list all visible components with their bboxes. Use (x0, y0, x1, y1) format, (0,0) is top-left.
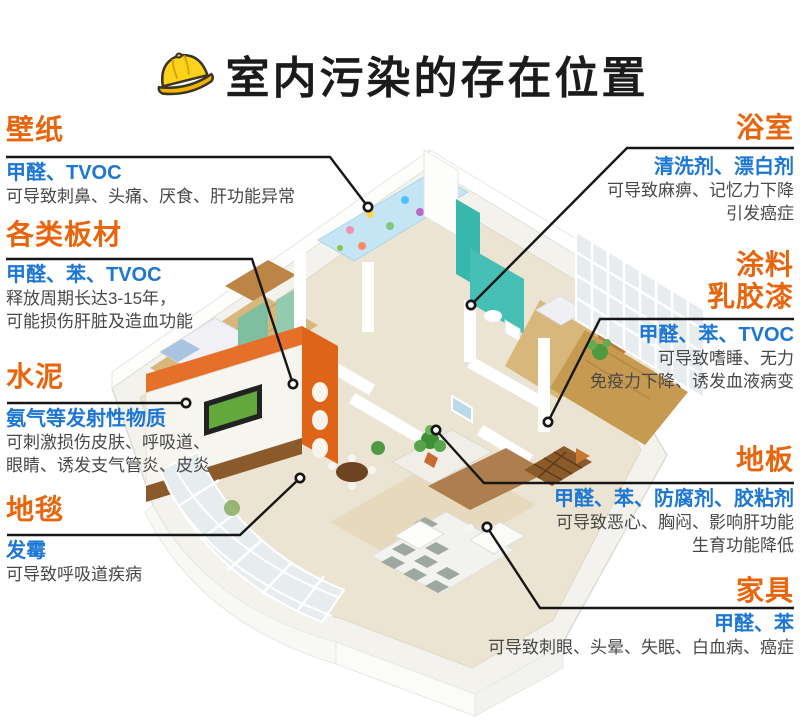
callout-title: 家具 (736, 575, 794, 607)
callout-title-line: 乳胶漆 (707, 281, 794, 313)
leader-dot-bathroom (467, 301, 475, 309)
callout-title: 浴室 (736, 112, 794, 144)
effects-line: 可导致恶心、胸闷、影响肝功能 (554, 511, 794, 534)
leader-dot-cement (182, 399, 190, 407)
hard-hat-icon (152, 45, 214, 104)
callout-wallpaper-body: 甲醛、TVOC 可导致刺鼻、头痛、厌食、肝功能异常 (6, 161, 295, 208)
effects-line: 免疫力下降、诱发血液病变 (590, 370, 794, 393)
effects-line: 可导致呼吸道疾病 (6, 563, 142, 586)
callout-title: 水泥 (6, 361, 64, 393)
callout-carpet: 地毯 (6, 494, 64, 526)
effects-line: 可导致刺眼、头晕、失眠、白血病、癌症 (488, 636, 794, 659)
callout-paint: 涂料 乳胶漆 (707, 249, 794, 313)
effects-line: 可刺激损伤皮肤、呼吸道、 (6, 431, 210, 454)
effects-line: 可导致嗜睡、无力 (590, 347, 794, 370)
callout-title: 壁纸 (6, 114, 64, 146)
callout-furniture-body: 甲醛、苯 可导致刺眼、头晕、失眠、白血病、癌症 (488, 612, 794, 659)
pollutants: 氨气等发射性物质 (6, 407, 210, 431)
callout-furniture: 家具 (736, 575, 794, 607)
callout-bathroom-body: 清洗剂、漂白剂 可导致麻痹、记忆力下降 引发癌症 (607, 155, 794, 225)
effects-line: 生育功能降低 (554, 534, 794, 557)
infographic-canvas: 室内污染的存在位置 壁纸 甲醛、TVOC 可导致刺鼻、头痛、厌食、肝功能异常 各… (0, 0, 800, 720)
callout-floor: 地板 (736, 444, 794, 476)
pollutants: 发霉 (6, 539, 142, 563)
leader-dot-paint (544, 418, 552, 426)
callout-floor-body: 甲醛、苯、防腐剂、胶粘剂 可导致恶心、胸闷、影响肝功能 生育功能降低 (554, 487, 794, 557)
callout-title-line: 涂料 (707, 249, 794, 281)
effects-line: 引发癌症 (607, 202, 794, 225)
callout-paint-body: 甲醛、苯、TVOC 可导致嗜睡、无力 免疫力下降、诱发血液病变 (590, 323, 794, 393)
pollutants: 清洗剂、漂白剂 (607, 155, 794, 179)
leader-dot-carpet (296, 474, 304, 482)
pollutants: 甲醛、苯、TVOC (6, 263, 193, 287)
leader-dot-wallpaper (364, 203, 372, 211)
pollutants: 甲醛、苯、防腐剂、胶粘剂 (554, 487, 794, 511)
effects-line: 眼睛、诱发支气管炎、皮炎 (6, 454, 210, 477)
effects-line: 可导致麻痹、记忆力下降 (607, 179, 794, 202)
effects-line: 释放周期长达3-15年， (6, 287, 193, 310)
leader-dot-furniture (483, 523, 491, 531)
callout-boards-body: 甲醛、苯、TVOC 释放周期长达3-15年， 可能损伤肝脏及造血功能 (6, 263, 193, 333)
pollutants: 甲醛、苯 (488, 612, 794, 636)
effects-line: 可能损伤肝脏及造血功能 (6, 310, 193, 333)
callout-title: 地毯 (6, 494, 64, 526)
callout-cement: 水泥 (6, 361, 64, 393)
callout-wallpaper: 壁纸 (6, 114, 64, 146)
pollutants: 甲醛、TVOC (6, 161, 295, 185)
callout-boards: 各类板材 (6, 219, 122, 251)
callout-title: 地板 (736, 444, 794, 476)
header: 室内污染的存在位置 (0, 42, 800, 106)
leader-dot-floor (432, 426, 440, 434)
callout-cement-body: 氨气等发射性物质 可刺激损伤皮肤、呼吸道、 眼睛、诱发支气管炎、皮炎 (6, 407, 210, 477)
effects-line: 可导致刺鼻、头痛、厌食、肝功能异常 (6, 185, 295, 208)
leader-dot-boards (289, 380, 297, 388)
callout-bathroom: 浴室 (736, 112, 794, 144)
callout-carpet-body: 发霉 可导致呼吸道疾病 (6, 539, 142, 586)
callout-title: 各类板材 (6, 219, 122, 251)
page-title: 室内污染的存在位置 (226, 42, 649, 106)
pollutants: 甲醛、苯、TVOC (590, 323, 794, 347)
